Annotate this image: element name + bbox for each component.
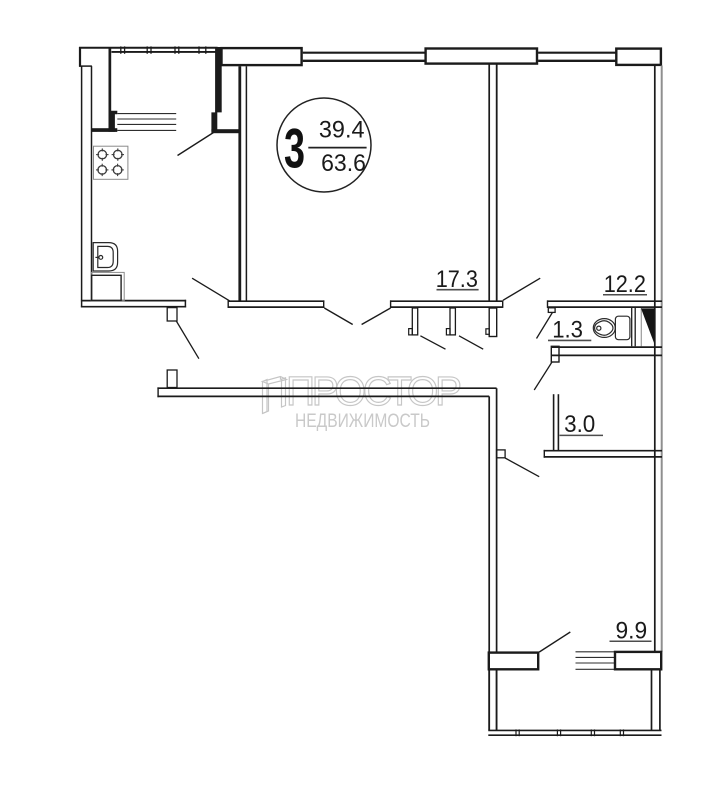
svg-text:9.9: 9.9 [616,617,648,644]
svg-text:3.0: 3.0 [564,411,595,438]
svg-text:3: 3 [284,117,305,180]
svg-text:ПРОСТОР: ПРОСТОР [286,368,462,414]
svg-text:НЕДВИЖИМОСТЬ: НЕДВИЖИМОСТЬ [295,410,430,432]
svg-text:1.3: 1.3 [552,316,583,343]
svg-text:63.6: 63.6 [321,150,366,177]
svg-text:39.4: 39.4 [319,117,365,144]
